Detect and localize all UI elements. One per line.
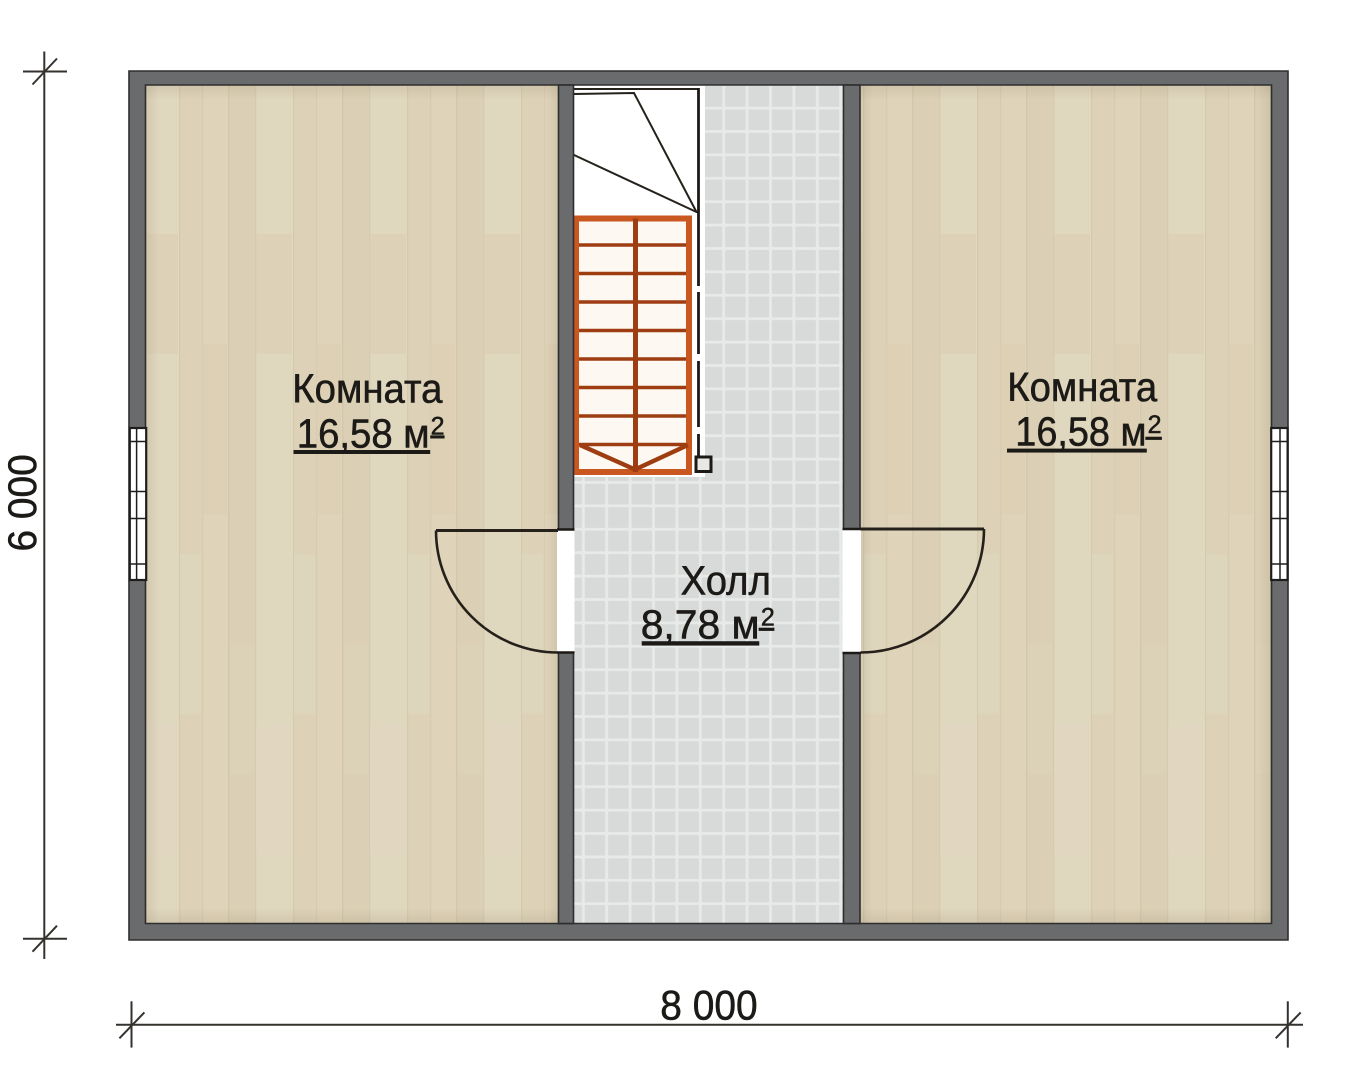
svg-text:Комната: Комната [292, 365, 442, 411]
svg-text:16,58 м: 16,58 м [297, 411, 430, 457]
svg-text:Комната: Комната [1007, 364, 1157, 410]
svg-text:16,58 м: 16,58 м [1015, 409, 1146, 455]
svg-text:8 000: 8 000 [660, 981, 757, 1028]
svg-text:2: 2 [761, 604, 775, 632]
svg-text:6 000: 6 000 [1, 454, 45, 551]
svg-text:8,78 м: 8,78 м [641, 602, 760, 648]
svg-text:2: 2 [1148, 411, 1162, 439]
svg-text:Холл: Холл [681, 557, 771, 603]
